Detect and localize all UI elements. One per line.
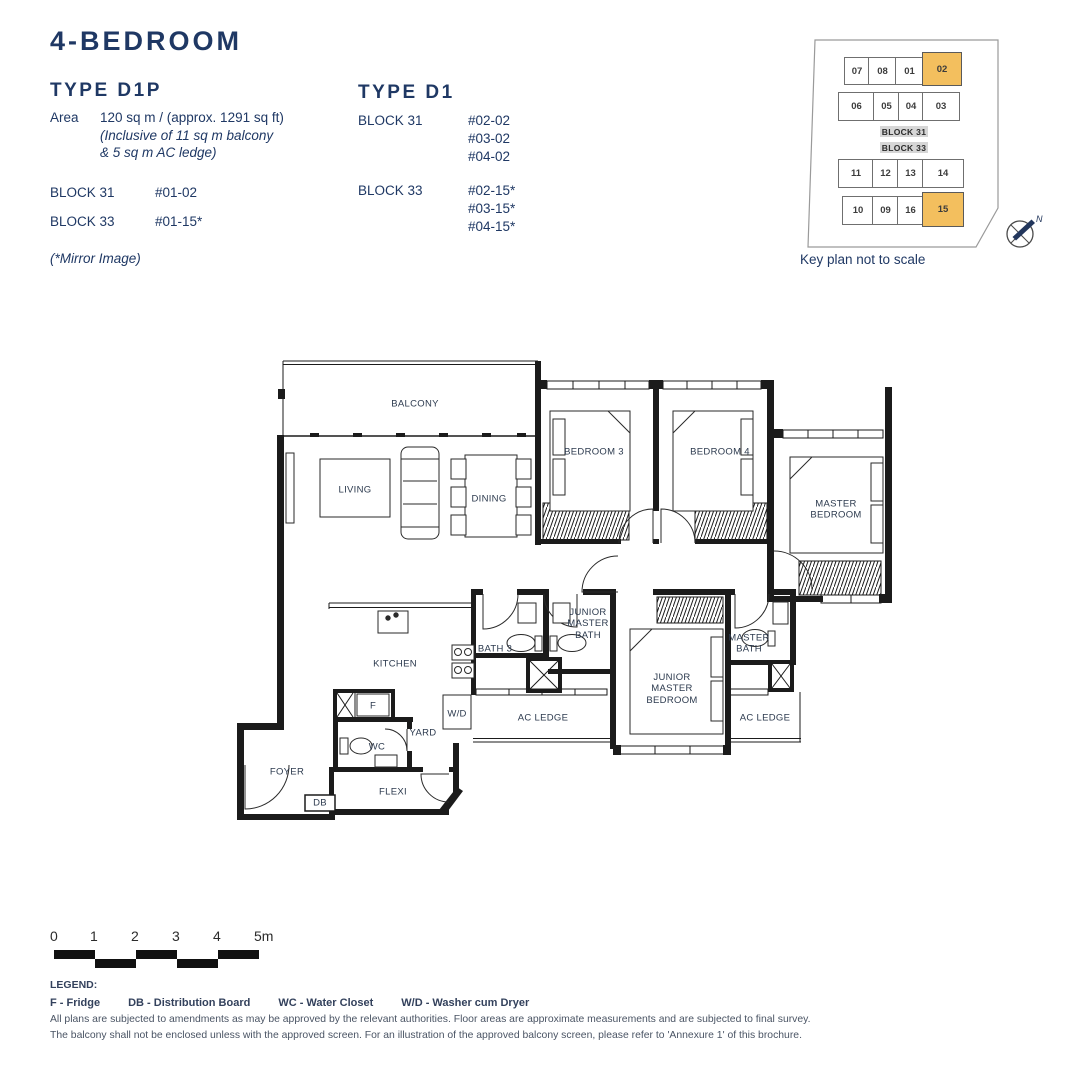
room-label-dining: DINING [459, 493, 519, 504]
scale-tick-1: 1 [90, 928, 98, 944]
legend-items: F - Fridge DB - Distribution Board WC - … [50, 997, 529, 1009]
d1-block1-name: BLOCK 31 [358, 113, 423, 128]
room-label-flexi: FLEXI [368, 786, 418, 797]
room-label-bedroom3: BEDROOM 3 [549, 446, 639, 457]
legend-item-wc: WC - Water Closet [278, 997, 373, 1009]
keyplan-unit-16: 16 [897, 196, 924, 225]
keyplan-unit-06: 06 [838, 92, 875, 121]
keyplan-unit-09: 09 [872, 196, 899, 225]
area-value: 120 sq m / (approx. 1291 sq ft) [100, 110, 284, 125]
scale-segment-2 [95, 959, 136, 968]
scale-tick-0: 0 [50, 928, 58, 944]
room-label-wc: WC [362, 741, 392, 752]
room-label-db: DB [307, 797, 333, 808]
keyplan-unit-08: 08 [868, 57, 897, 85]
floorplan-drawing [225, 347, 915, 842]
room-label-fridge: F [363, 700, 383, 711]
d1-block2-unit-2: #03-15* [468, 201, 515, 216]
brochure-page: { "header": { "title": "4-BEDROOM" }, "l… [0, 0, 1082, 1069]
room-label-bath3: BATH 3 [469, 643, 521, 654]
d1-block1-unit-2: #03-02 [468, 131, 510, 146]
area-label: Area [50, 110, 79, 125]
scale-segment-5 [218, 950, 259, 959]
d1p-block2-name: BLOCK 33 [50, 214, 115, 229]
mirror-note: (*Mirror Image) [50, 251, 141, 266]
keyplan-block31-label: BLOCK 31 [880, 126, 928, 137]
floor-plan: BALCONY LIVING DINING BEDROOM 3 BEDROOM … [225, 347, 915, 842]
room-label-ac-ledge-right: AC LEDGE [730, 712, 800, 723]
keyplan-unit-05: 05 [873, 92, 900, 121]
room-label-ac-ledge-left: AC LEDGE [508, 712, 578, 723]
room-label-balcony: BALCONY [365, 398, 465, 409]
room-label-bedroom4: BEDROOM 4 [675, 446, 765, 457]
d1-block2-unit-3: #04-15* [468, 219, 515, 234]
room-label-yard: YARD [401, 727, 445, 738]
d1-block2-unit-1: #02-15* [468, 183, 515, 198]
keyplan-caption: Key plan not to scale [800, 252, 925, 267]
legend-item-wd: W/D - Washer cum Dryer [401, 997, 529, 1009]
room-label-junior-master-bedroom: JUNIOR MASTER BEDROOM [639, 672, 705, 706]
disclaimer-line2: The balcony shall not be enclosed unless… [50, 1030, 1065, 1041]
key-plan: 07 08 01 02 06 05 04 03 BLOCK 31 BLOCK 3… [800, 38, 1005, 250]
area-note-line2: & 5 sq m AC ledge) [100, 145, 217, 160]
page-title: 4-BEDROOM [50, 26, 242, 57]
type-d1-heading: TYPE D1 [358, 82, 455, 104]
room-label-master-bath: MASTER BATH [722, 633, 776, 656]
scale-segment-4 [177, 959, 218, 968]
type-d1p-heading: TYPE D1P [50, 80, 162, 102]
legend-item-fridge: F - Fridge [50, 997, 100, 1009]
scale-tick-4: 4 [213, 928, 221, 944]
legend-item-db: DB - Distribution Board [128, 997, 250, 1009]
keyplan-unit-11: 11 [838, 159, 874, 188]
keyplan-unit-15-highlighted: 15 [922, 192, 964, 227]
d1p-block2-unit: #01-15* [155, 214, 202, 229]
legend-heading: LEGEND: [50, 979, 97, 991]
d1p-block1-name: BLOCK 31 [50, 185, 115, 200]
keyplan-unit-07: 07 [844, 57, 870, 85]
d1-block1-unit-3: #04-02 [468, 149, 510, 164]
scale-tick-2: 2 [131, 928, 139, 944]
d1-block2-name: BLOCK 33 [358, 183, 423, 198]
scale-tick-5m: 5m [254, 928, 273, 944]
keyplan-unit-14: 14 [922, 159, 964, 188]
keyplan-unit-10: 10 [842, 196, 874, 225]
keyplan-unit-12: 12 [872, 159, 899, 188]
keyplan-unit-02-highlighted: 02 [922, 52, 962, 86]
compass-icon: N [1000, 210, 1048, 254]
d1-block1-unit-1: #02-02 [468, 113, 510, 128]
keyplan-unit-03: 03 [922, 92, 960, 121]
d1p-block1-unit: #01-02 [155, 185, 197, 200]
room-label-foyer: FOYER [262, 766, 312, 777]
room-label-junior-master-bath: JUNIOR MASTER BATH [560, 607, 616, 641]
room-label-kitchen: KITCHEN [360, 658, 430, 669]
area-note-line1: (Inclusive of 11 sq m balcony [100, 128, 273, 143]
room-label-living: LIVING [325, 484, 385, 495]
keyplan-block33-label: BLOCK 33 [880, 142, 928, 153]
compass-north-label: N [1036, 214, 1043, 224]
keyplan-unit-13: 13 [897, 159, 924, 188]
room-label-master-bedroom: MASTER BEDROOM [803, 499, 869, 522]
scale-tick-3: 3 [172, 928, 180, 944]
disclaimer-line1: All plans are subjected to amendments as… [50, 1014, 1065, 1025]
room-label-wd: W/D [440, 708, 474, 719]
keyplan-unit-01: 01 [895, 57, 924, 85]
scale-segment-1 [54, 950, 95, 959]
scale-bar: 0 1 2 3 4 5m [50, 928, 290, 970]
scale-segment-3 [136, 950, 177, 959]
keyplan-unit-04: 04 [898, 92, 924, 121]
